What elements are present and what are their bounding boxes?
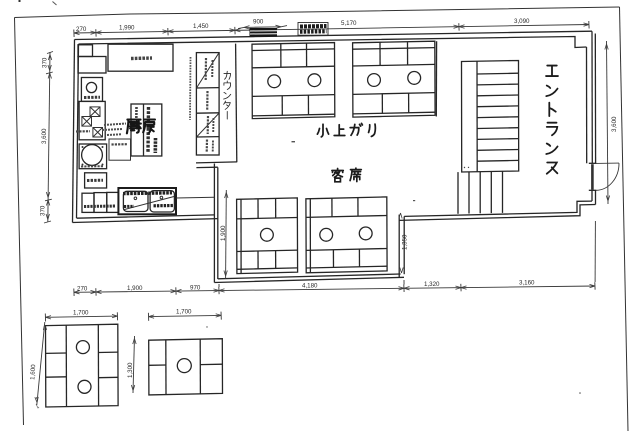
svg-text:1,320: 1,320 — [424, 281, 440, 288]
svg-text:270: 270 — [77, 286, 88, 293]
svg-text:1,450: 1,450 — [193, 23, 209, 30]
svg-text:370: 370 — [40, 205, 47, 216]
svg-text:4,180: 4,180 — [302, 283, 318, 290]
svg-text:900: 900 — [253, 19, 264, 26]
svg-text:1,300: 1,300 — [127, 362, 134, 378]
svg-text:3,600: 3,600 — [41, 128, 48, 144]
svg-text:1,900: 1,900 — [127, 285, 143, 292]
svg-text:3,600: 3,600 — [611, 116, 618, 132]
svg-text:970: 970 — [190, 284, 201, 291]
svg-text:270: 270 — [76, 26, 87, 33]
svg-text:1,900: 1,900 — [220, 225, 227, 241]
svg-text:1,990: 1,990 — [119, 25, 135, 32]
svg-text:1,600: 1,600 — [29, 364, 37, 380]
svg-text:3,160: 3,160 — [519, 279, 535, 286]
svg-text:370: 370 — [42, 57, 49, 68]
svg-text:1,700: 1,700 — [176, 309, 192, 316]
svg-text:3,090: 3,090 — [514, 18, 530, 25]
svg-text:5,170: 5,170 — [341, 20, 357, 27]
svg-text:1,350: 1,350 — [402, 234, 409, 250]
svg-text:1,700: 1,700 — [73, 309, 89, 316]
